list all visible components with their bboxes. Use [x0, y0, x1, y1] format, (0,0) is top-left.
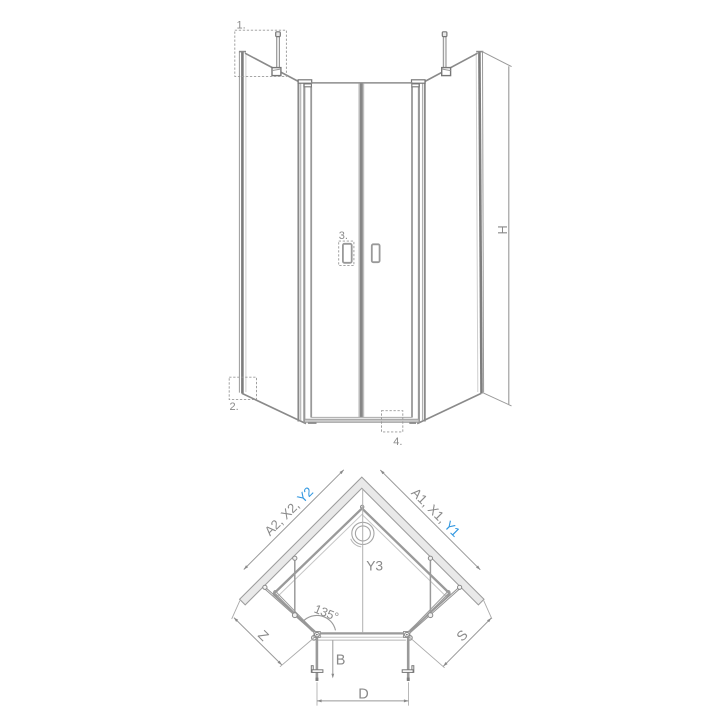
svg-text:4.: 4.	[393, 436, 402, 448]
svg-text:B: B	[336, 653, 346, 669]
svg-text:H: H	[496, 225, 510, 234]
svg-text:2.: 2.	[230, 401, 239, 413]
svg-text:D: D	[358, 686, 368, 702]
svg-text:135°: 135°	[312, 602, 341, 624]
svg-text:Y3: Y3	[366, 559, 383, 574]
svg-text:3.: 3.	[339, 230, 348, 242]
svg-text:1.: 1.	[237, 20, 246, 32]
